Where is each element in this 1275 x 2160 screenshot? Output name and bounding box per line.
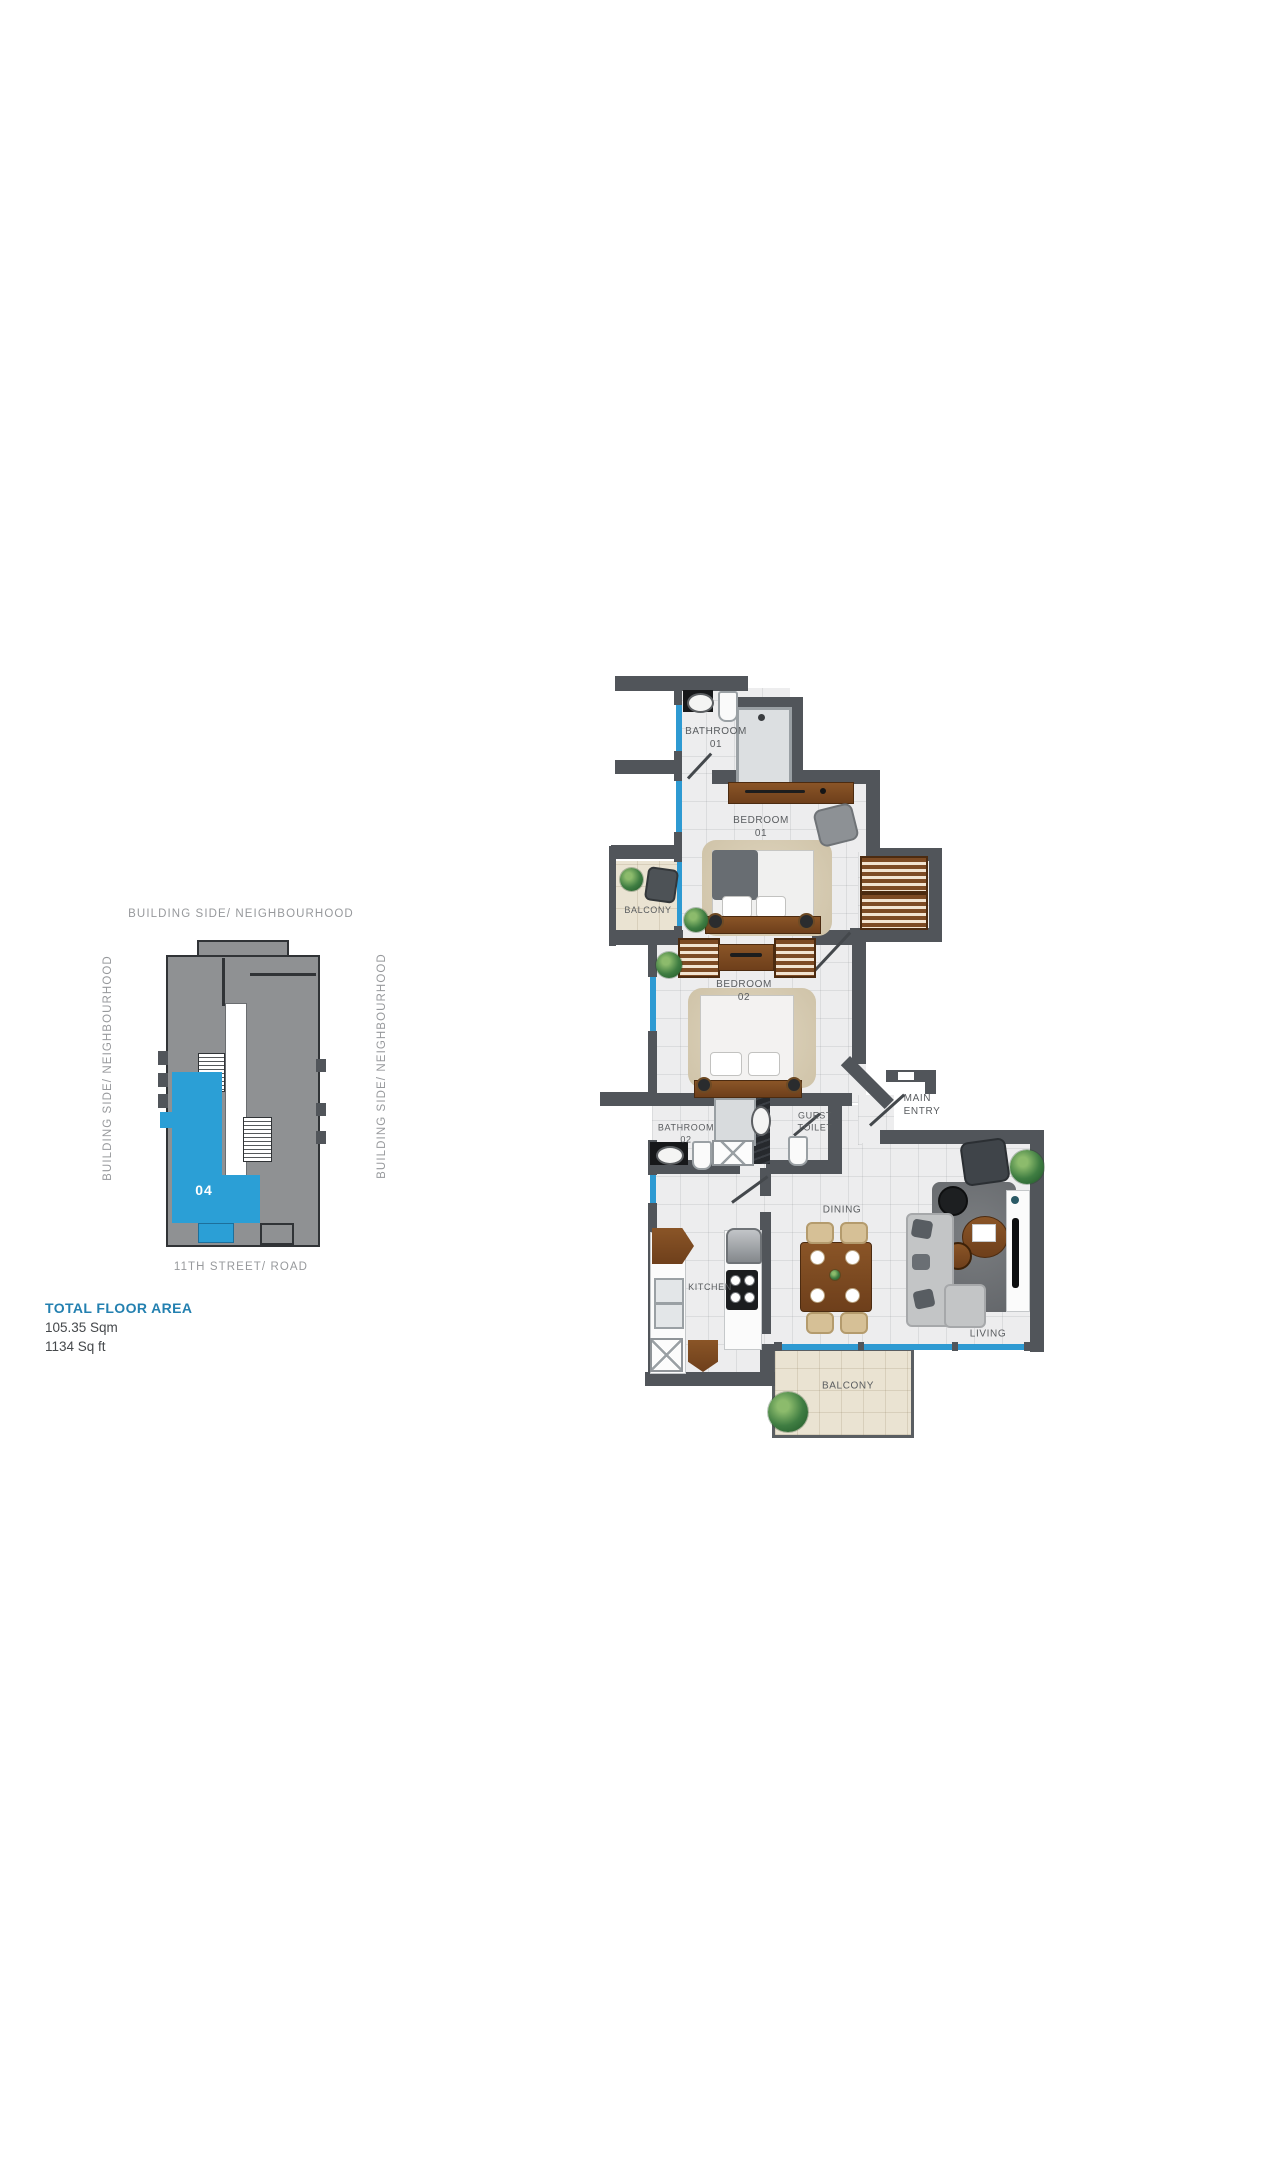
keyplan-stub: [316, 1131, 326, 1144]
label-bedroom-01: BEDROOM 01: [733, 814, 789, 840]
keyplan-unit-04: [172, 1175, 260, 1223]
wall: [600, 1092, 650, 1106]
label-bathroom-02: BATHROOM 02: [658, 1122, 714, 1145]
total-area-sqm: 105.35 Sqm: [45, 1320, 118, 1335]
keyplan-unit-04-balcony: [198, 1223, 234, 1243]
bedside-lamp: [786, 1077, 802, 1093]
wall: [760, 1344, 774, 1384]
keyplan-divider: [222, 958, 225, 1006]
shower-head: [758, 714, 765, 721]
plant: [656, 952, 682, 978]
keyplan-top-label: BUILDING SIDE/ NEIGHBOURHOOD: [122, 908, 360, 920]
side-table: [938, 1186, 968, 1216]
keyplan-stub: [316, 1103, 326, 1116]
keyplan-left-label: BUILDING SIDE/ NEIGHBOURHOOD: [102, 955, 114, 1181]
console: [718, 944, 774, 971]
label-dining: DINING: [823, 1204, 862, 1217]
dining-chair: [840, 1312, 868, 1334]
total-area-title: TOTAL FLOOR AREA: [45, 1300, 192, 1316]
unit-number: 04: [195, 1182, 213, 1198]
keyplan-stub: [158, 1073, 168, 1087]
entry-sidelight: [898, 1072, 914, 1080]
label-kitchen: KITCHEN: [688, 1282, 732, 1294]
tv: [1012, 1218, 1019, 1288]
console-handle: [730, 953, 762, 957]
shower-glass: [714, 1098, 756, 1146]
label-balcony-bottom: BALCONY: [822, 1380, 874, 1393]
label-bathroom-01: BATHROOM 01: [685, 725, 747, 751]
dresser-decor: [745, 790, 805, 793]
wall: [852, 938, 866, 1064]
balcony-chair: [644, 866, 679, 904]
keyplan-unit-04-balcony: [160, 1112, 173, 1128]
window: [650, 977, 656, 1031]
keyplan-stairs: [243, 1117, 272, 1162]
washing-machine: [650, 1338, 683, 1372]
window-living: [778, 1344, 1030, 1350]
wall: [645, 1372, 775, 1386]
keyplan-stub: [316, 1059, 326, 1072]
dresser: [728, 782, 854, 804]
tv-decor: [1011, 1196, 1019, 1204]
wall: [674, 832, 682, 862]
window: [676, 781, 682, 832]
label-guest-toilet: GUEST TOILET: [798, 1110, 833, 1133]
dining-chair: [806, 1312, 834, 1334]
wall: [674, 688, 682, 705]
pillow: [748, 1052, 780, 1076]
floor-plan-page: BUILDING SIDE/ NEIGHBOURHOOD BUILDING SI…: [0, 0, 1275, 2160]
window: [676, 705, 682, 751]
bedside-lamp: [707, 913, 724, 930]
bed-01-blanket: [712, 850, 758, 900]
coffee-table-books: [972, 1224, 996, 1242]
keyplan-street-label: 11TH STREET/ ROAD: [150, 1261, 332, 1273]
kitchen-sink: [654, 1303, 684, 1329]
keyplan-right-label: BUILDING SIDE/ NEIGHBOURHOOD: [376, 953, 388, 1179]
label-living: LIVING: [970, 1328, 1006, 1341]
plate: [845, 1288, 860, 1303]
window-mullion: [1024, 1342, 1032, 1351]
dining-chair: [840, 1222, 868, 1244]
window: [650, 1175, 656, 1203]
wardrobe: [860, 856, 928, 893]
sink: [656, 1146, 684, 1165]
wall: [925, 1070, 936, 1094]
wardrobe: [678, 938, 720, 978]
keyplan-unit-04: [172, 1072, 222, 1178]
bedside-lamp: [696, 1077, 712, 1093]
wall: [615, 760, 677, 774]
wall: [611, 930, 683, 945]
plate: [810, 1288, 825, 1303]
keyplan-stub: [158, 1094, 168, 1108]
pillow: [710, 1052, 742, 1076]
plant: [684, 908, 708, 932]
wardrobe: [860, 893, 928, 930]
sofa-chaise: [944, 1284, 986, 1328]
toilet: [718, 691, 738, 722]
keyplan-divider: [250, 973, 316, 976]
window-mullion: [952, 1342, 958, 1351]
pillow: [756, 896, 786, 918]
plate: [845, 1250, 860, 1265]
centerpiece: [830, 1270, 840, 1280]
window-mullion: [858, 1342, 864, 1351]
label-bedroom-02: BEDROOM 02: [716, 978, 772, 1004]
wall: [611, 845, 679, 859]
sink: [687, 693, 714, 713]
label-balcony-top: BALCONY: [624, 905, 671, 917]
fridge: [726, 1228, 762, 1264]
wall: [648, 935, 657, 977]
dining-chair: [806, 1222, 834, 1244]
wall: [880, 1130, 1038, 1144]
kitchen-sink: [654, 1278, 684, 1304]
window-mullion: [774, 1342, 782, 1351]
total-area-sqft: 1134 Sq ft: [45, 1339, 106, 1354]
pillow: [722, 896, 752, 918]
plant: [620, 868, 643, 891]
armchair: [959, 1137, 1011, 1187]
sofa-pillow: [912, 1254, 930, 1270]
wardrobe: [774, 938, 816, 978]
wall: [648, 1031, 657, 1095]
sofa-pillow: [911, 1218, 934, 1239]
stove-burner: [744, 1275, 755, 1286]
plant: [768, 1392, 808, 1432]
bedside-lamp: [798, 913, 815, 930]
label-main-entry: MAIN ENTRY: [904, 1092, 941, 1118]
shower-tray: [712, 1140, 754, 1166]
toilet: [788, 1136, 808, 1166]
stove-burner: [744, 1292, 755, 1303]
dresser-decor: [820, 788, 826, 794]
keyplan-lower-tab: [260, 1223, 294, 1245]
wall: [674, 751, 682, 781]
sink: [751, 1106, 771, 1136]
plant: [1010, 1150, 1044, 1184]
keyplan-stub: [158, 1051, 168, 1065]
plate: [810, 1250, 825, 1265]
